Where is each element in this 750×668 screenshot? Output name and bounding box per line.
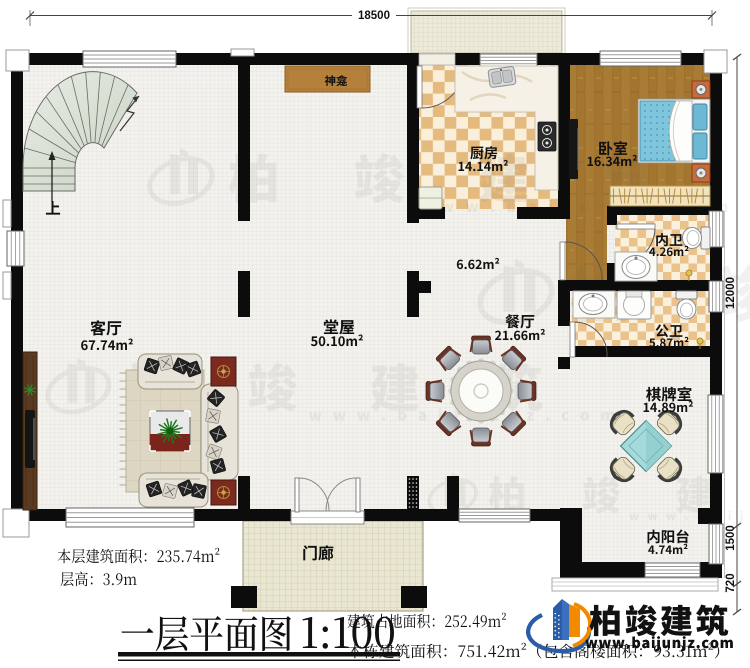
svg-text:720: 720 <box>725 573 737 592</box>
svg-text:1500: 1500 <box>725 525 737 551</box>
svg-text:12000: 12000 <box>725 277 737 309</box>
svg-text:18500: 18500 <box>358 10 390 22</box>
